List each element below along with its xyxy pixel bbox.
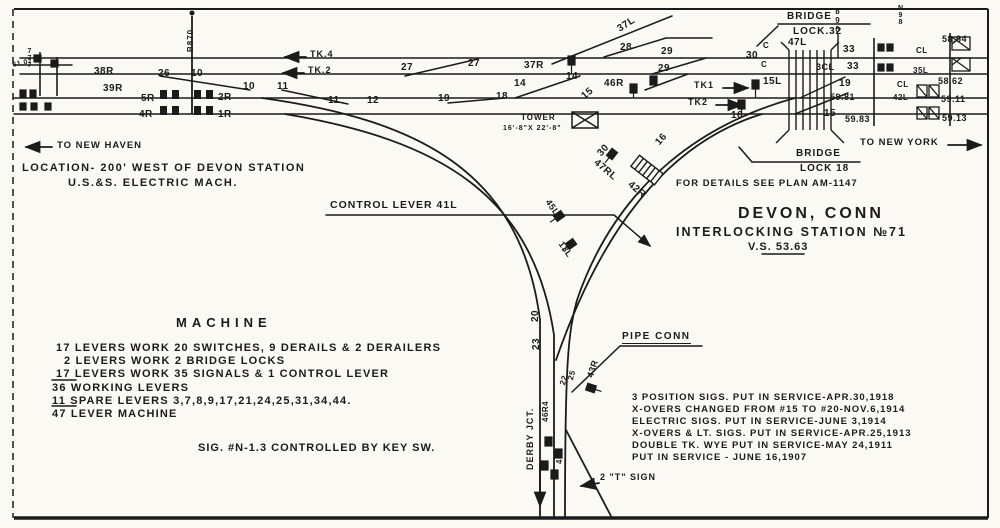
diagram-annotation: 12 — [367, 96, 379, 106]
diagram-annotation: 890 — [833, 7, 841, 34]
diagram-annotation: 11 — [328, 96, 340, 106]
diagram-annotation: 4R — [139, 110, 153, 120]
diagram-annotation: 42R — [626, 180, 648, 200]
diagram-annotation: 46R4 — [542, 401, 550, 422]
annotation-layer: 2610101111122727191814141537R46R37L28292… — [0, 0, 1000, 528]
diagram-annotation: 58.64 — [942, 35, 967, 44]
diagram-annotation: 46R — [604, 79, 624, 89]
diagram-annotation: 19 — [438, 94, 450, 104]
diagram-annotation: C — [763, 42, 769, 50]
diagram-annotation: 18 — [496, 92, 508, 102]
diagram-annotation: 38R — [94, 67, 114, 77]
diagram-annotation: 47RL — [592, 158, 619, 183]
diagram-annotation: 19 — [839, 79, 851, 89]
diagram-annotation: 59.81 — [830, 93, 855, 102]
diagram-annotation: 29 — [661, 47, 673, 57]
diagram-annotation: 33 — [847, 62, 859, 72]
diagram-annotation: 59.13 — [942, 114, 967, 123]
diagram-annotation: 45L — [544, 198, 561, 217]
diagram-annotation: 28 — [620, 43, 632, 53]
diagram-annotation: 11 — [277, 82, 289, 92]
diagram-annotation: 3CL — [816, 63, 835, 72]
diagram-annotation: 13L — [557, 240, 574, 259]
diagram-annotation: C — [761, 61, 767, 69]
diagram-annotation: 35L — [913, 67, 928, 75]
diagram-annotation: 20 — [531, 310, 541, 322]
diagram-annotation: 58.62 — [938, 77, 963, 86]
diagram-annotation: 39R — [103, 84, 123, 94]
diagram-annotation: 15 — [580, 86, 596, 101]
diagram-annotation: 25 — [567, 369, 577, 381]
diagram-annotation: 47L — [788, 38, 807, 48]
diagram-annotation: 16 — [731, 111, 743, 121]
diagram-annotation: 29 — [658, 64, 670, 74]
diagram-annotation: 16 — [654, 132, 670, 148]
diagram-annotation: CL — [916, 47, 928, 55]
diagram-annotation: 59.11 — [941, 95, 966, 104]
diagram-annotation: 27 — [401, 63, 413, 73]
diagram-annotation: 42L — [893, 94, 908, 102]
diagram-annotation: 30 — [746, 51, 758, 61]
diagram-annotation: 27 — [468, 59, 480, 69]
diagram-annotation: N98 — [897, 5, 904, 26]
diagram-annotation: 10 — [243, 82, 255, 92]
diagram-annotation: 59.83 — [845, 115, 870, 124]
diagram-annotation: 2R — [218, 93, 232, 103]
diagram-annotation: 15L — [763, 77, 782, 87]
diagram-annotation: 23 — [532, 338, 542, 350]
diagram-annotation: 26 — [158, 69, 170, 79]
diagram-annotation: 43R — [586, 359, 600, 379]
diagram-annotation: 40R — [556, 448, 564, 464]
diagram-annotation: 33 — [843, 45, 855, 55]
diagram-annotation: 1R — [218, 110, 232, 120]
diagram-annotation: 37L — [616, 16, 637, 35]
diagram-annotation: 14 — [514, 79, 526, 89]
diagram-annotation: CL — [897, 81, 909, 89]
diagram-annotation: 37R — [524, 61, 544, 71]
diagram-annotation: 15 — [824, 109, 836, 119]
diagram-annotation: 14 — [566, 72, 578, 82]
interlocking-diagram-sheet: TO NEW HAVEN TO NEW YORK LOCATION- 200' … — [0, 0, 1000, 528]
diagram-annotation: 5R — [141, 94, 155, 104]
diagram-annotation: 10 — [191, 69, 203, 79]
